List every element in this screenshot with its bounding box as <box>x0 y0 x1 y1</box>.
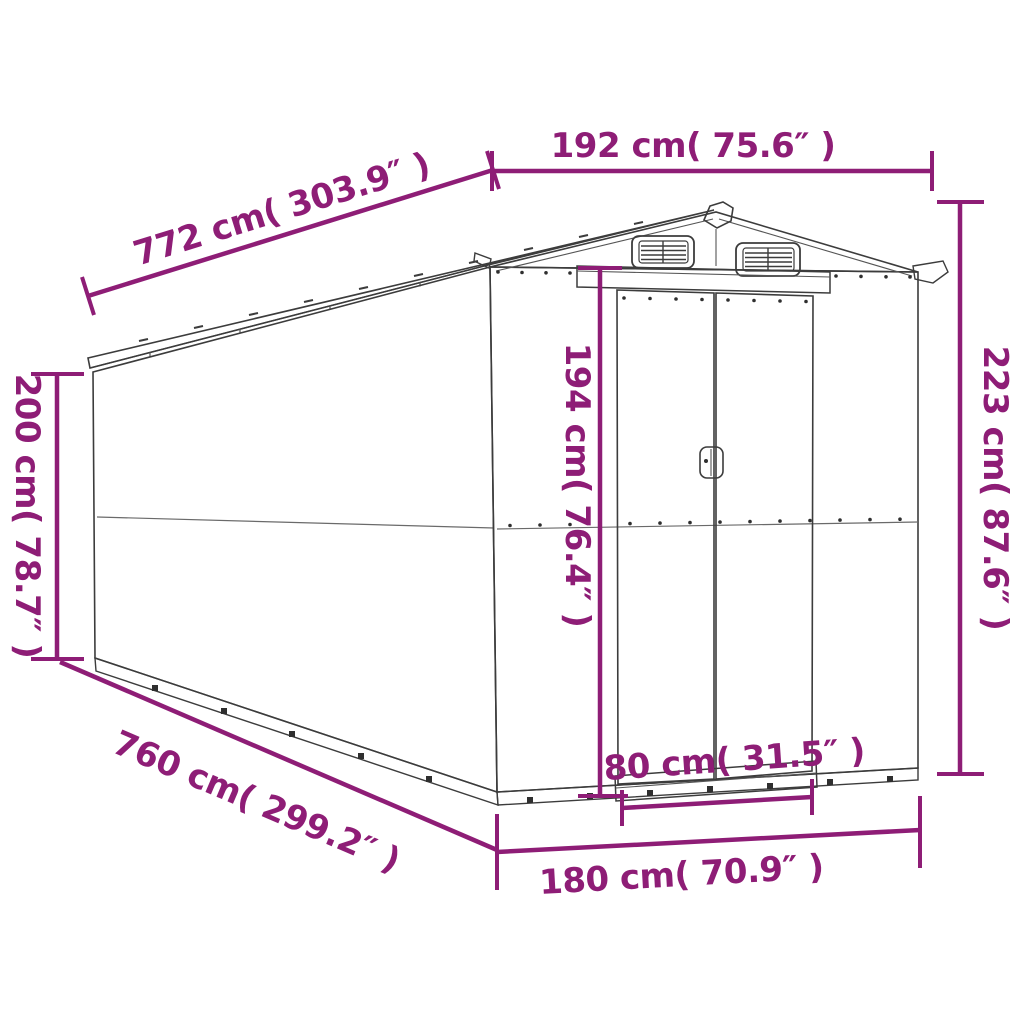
dimension-label: 223 cm( 87.6″ ) <box>975 346 1015 631</box>
side-wall-seam <box>97 517 494 528</box>
door-handle <box>700 447 723 478</box>
diagram-canvas: 192 cm( 75.6″ ) 772 cm( 303.9″ ) 223 cm(… <box>0 0 1024 1024</box>
door-top-rivets <box>622 296 808 303</box>
dimension-line <box>497 830 920 852</box>
door-left <box>617 290 714 784</box>
shed-illustration <box>88 202 948 805</box>
side-base-rail <box>95 658 498 805</box>
door-right <box>716 293 813 779</box>
dim-door-width: 80 cm( 31.5″ ) <box>602 731 866 826</box>
dimension-annotations: 192 cm( 75.6″ ) 772 cm( 303.9″ ) 223 cm(… <box>7 126 1015 903</box>
door-track-band-line <box>577 271 830 277</box>
gable-vent-left <box>632 236 694 268</box>
dimension-label: 772 cm( 303.9″ ) <box>129 145 435 275</box>
shed-side-wall <box>93 267 497 792</box>
dimension-label: 80 cm( 31.5″ ) <box>602 731 866 789</box>
shed-dimension-diagram: 192 cm( 75.6″ ) 772 cm( 303.9″ ) 223 cm(… <box>0 0 1024 1024</box>
dimension-label: 192 cm( 75.6″ ) <box>551 126 836 166</box>
dim-total-height-right: 223 cm( 87.6″ ) <box>937 202 1015 774</box>
dim-side-length-bottom: 760 cm( 299.2″ ) <box>60 662 497 881</box>
dimension-label: 194 cm( 76.4″ ) <box>557 343 597 628</box>
dimension-label: 180 cm( 70.9″ ) <box>538 847 825 903</box>
dim-side-length-top: 772 cm( 303.9″ ) <box>82 145 499 315</box>
dimension-label: 200 cm( 78.7″ ) <box>7 374 47 659</box>
dim-front-width-bottom: 180 cm( 70.9″ ) <box>497 796 920 903</box>
dim-front-width-top: 192 cm( 75.6″ ) <box>492 126 932 191</box>
dim-wall-height-left: 200 cm( 78.7″ ) <box>7 374 84 659</box>
shed-front-wall <box>490 267 918 792</box>
